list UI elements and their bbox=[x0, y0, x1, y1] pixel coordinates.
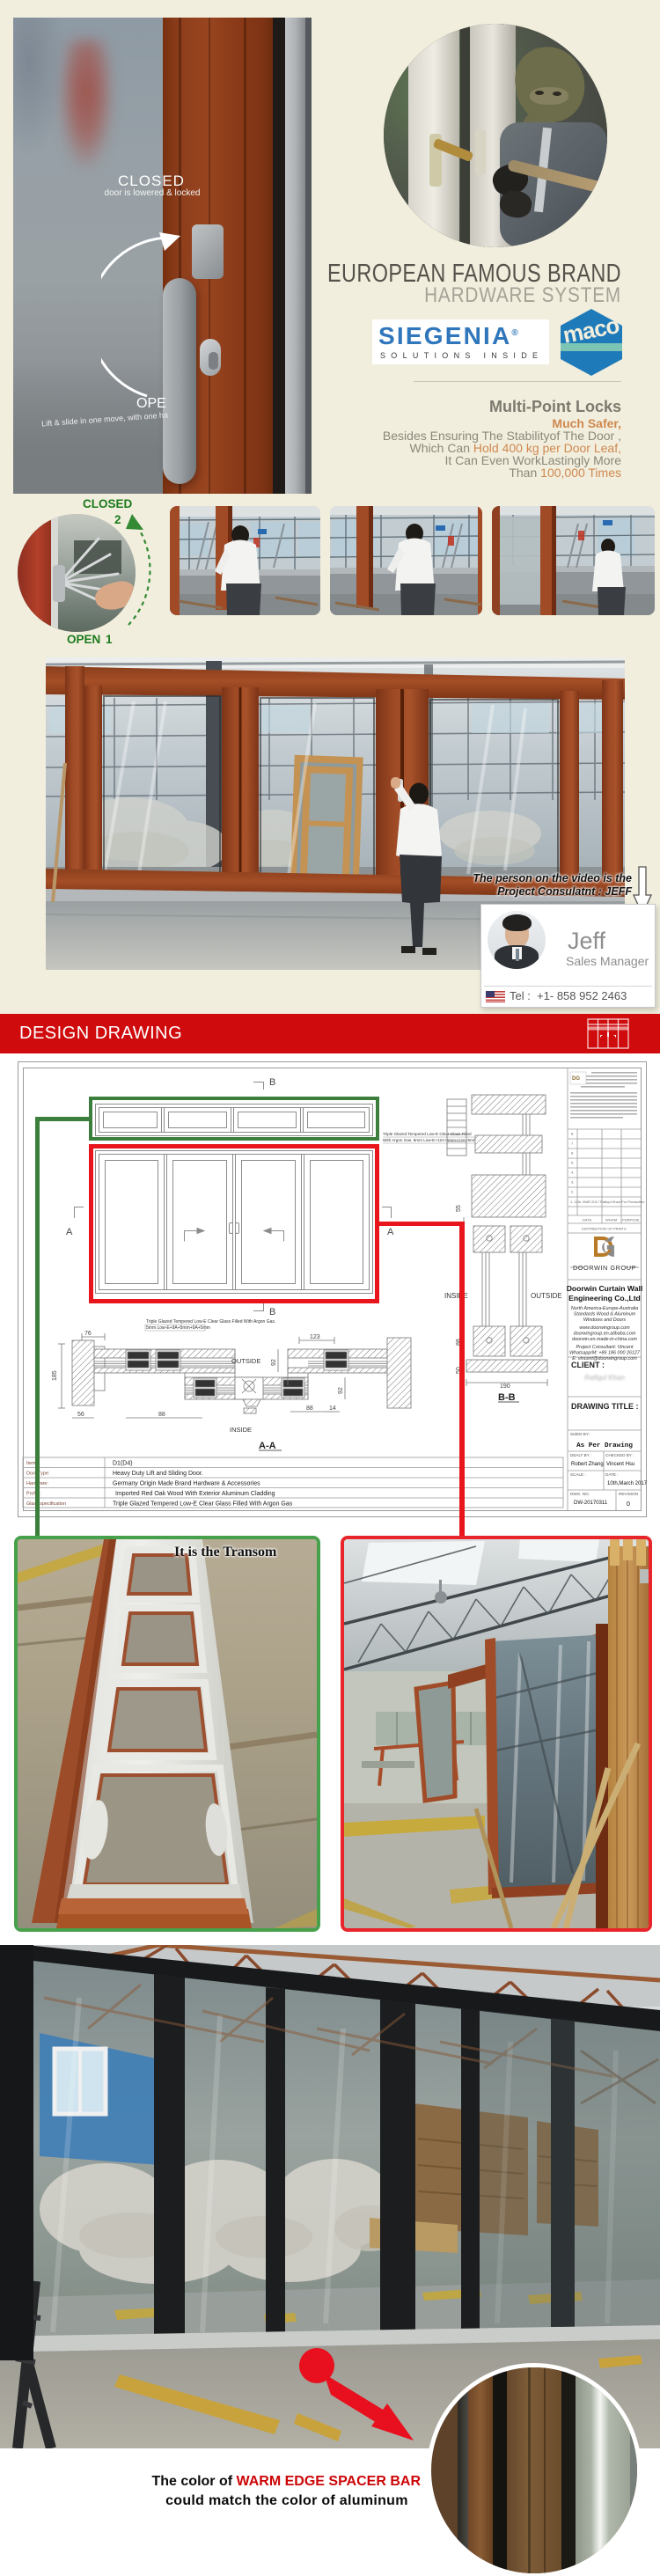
svg-text:185: 185 bbox=[52, 1370, 58, 1381]
svg-text:North America-Europe-Australia: North America-Europe-Australia bbox=[571, 1306, 638, 1311]
svg-text:DEALT BY :: DEALT BY : bbox=[570, 1453, 591, 1457]
svg-text:Doorwin Curtain Wall: Doorwin Curtain Wall bbox=[567, 1284, 643, 1293]
svg-text:WHOM: WHOM bbox=[605, 1218, 617, 1222]
svg-text:14: 14 bbox=[329, 1405, 336, 1412]
svg-text:Triple Glazed Tempered Low-E C: Triple Glazed Tempered Low-E Clear Glass… bbox=[146, 1319, 275, 1325]
svg-text:B: B bbox=[269, 1077, 275, 1088]
svg-text:56: 56 bbox=[77, 1412, 84, 1418]
svg-text:DWG. NO.: DWG. NO. bbox=[570, 1492, 590, 1496]
svg-text:55: 55 bbox=[456, 1205, 462, 1212]
svg-text:88: 88 bbox=[158, 1412, 165, 1418]
svg-text:DATE: DATE bbox=[583, 1218, 592, 1222]
svg-text:A: A bbox=[66, 1227, 73, 1237]
svg-text:DRAWING TITLE :: DRAWING TITLE : bbox=[571, 1402, 639, 1411]
svg-text:DOORWIN GROUP: DOORWIN GROUP bbox=[573, 1264, 636, 1272]
svg-text:www.doorwingroup.com: www.doorwingroup.com bbox=[579, 1325, 630, 1331]
svg-text:6.: 6. bbox=[571, 1151, 574, 1156]
svg-text:Windows and Doors: Windows and Doors bbox=[583, 1317, 626, 1323]
svg-text:92: 92 bbox=[338, 1387, 344, 1394]
svg-text:92: 92 bbox=[271, 1359, 277, 1366]
svg-text:Robert Zhang: Robert Zhang bbox=[571, 1462, 604, 1467]
svg-text:7.: 7. bbox=[571, 1141, 574, 1146]
svg-text:2.: 2. bbox=[571, 1190, 574, 1194]
svg-text:Glass specification: Glass specification bbox=[26, 1501, 66, 1507]
svg-text:1. 11th. MAR 2017 Rafiqul Khan: 1. 11th. MAR 2017 Rafiqul Khan For Produ… bbox=[570, 1200, 644, 1204]
svg-text:Heavy Duty Lift and Sliding Do: Heavy Duty Lift and Sliding Door. bbox=[113, 1471, 203, 1477]
svg-text:Triple Glazed Tempered Low-E C: Triple Glazed Tempered Low-E Clear Glass… bbox=[113, 1501, 293, 1508]
svg-text:DW-20170311: DW-20170311 bbox=[574, 1501, 608, 1506]
svg-text:D1(D4): D1(D4) bbox=[113, 1461, 133, 1467]
svg-text:CHECKED BY :: CHECKED BY : bbox=[605, 1453, 634, 1457]
svg-text:OUTSIDE: OUTSIDE bbox=[531, 1292, 562, 1300]
svg-text:Project Consultant: Vincent: Project Consultant: Vincent bbox=[576, 1345, 634, 1350]
svg-text:Vincent Hsu: Vincent Hsu bbox=[606, 1462, 634, 1467]
svg-text:10th,March 2017: 10th,March 2017 bbox=[607, 1481, 648, 1486]
svg-text:Germany Origin Made Brand Hard: Germany Origin Made Brand Hardware & Acc… bbox=[113, 1481, 260, 1487]
svg-text:SIZED BY:: SIZED BY: bbox=[570, 1432, 590, 1436]
svg-text:Standards Wood & Aluminum: Standards Wood & Aluminum bbox=[574, 1312, 636, 1317]
svg-text:DISTRIBUTION OF PRINTS: DISTRIBUTION OF PRINTS bbox=[582, 1227, 627, 1231]
svg-text:3.: 3. bbox=[571, 1180, 574, 1185]
svg-text:B-B: B-B bbox=[498, 1392, 516, 1403]
svg-text:8.: 8. bbox=[571, 1132, 574, 1136]
svg-text:Engineering Co.,Ltd: Engineering Co.,Ltd bbox=[568, 1294, 641, 1303]
svg-text:CLIENT :: CLIENT : bbox=[571, 1361, 605, 1369]
svg-text:123: 123 bbox=[310, 1334, 320, 1340]
svg-text:INSIDE: INSIDE bbox=[230, 1426, 252, 1434]
svg-text:5mm Low-E+9A+5mm+9A+5mm: 5mm Low-E+9A+5mm+9A+5mm bbox=[146, 1325, 210, 1331]
svg-text:A-A: A-A bbox=[259, 1441, 276, 1451]
svg-text:B: B bbox=[269, 1307, 275, 1317]
svg-text:Imported Red Oak Wood With Ext: Imported Red Oak Wood With Exterior Alum… bbox=[115, 1491, 275, 1497]
svg-text:DATE :: DATE : bbox=[605, 1472, 618, 1477]
svg-text:0: 0 bbox=[627, 1501, 630, 1508]
svg-text:doorwin.en.made-in-china.com: doorwin.en.made-in-china.com bbox=[572, 1337, 637, 1342]
svg-text:5.: 5. bbox=[571, 1161, 574, 1165]
svg-text:REVISION: REVISION bbox=[619, 1492, 638, 1496]
svg-text:88: 88 bbox=[306, 1405, 313, 1412]
svg-text:PURPOSE: PURPOSE bbox=[622, 1218, 640, 1222]
svg-text:A: A bbox=[387, 1227, 394, 1237]
svg-text:OUTSIDE: OUTSIDE bbox=[231, 1357, 260, 1365]
svg-text:SCALE :: SCALE : bbox=[570, 1472, 586, 1477]
svg-text:Rafiqul Khan: Rafiqul Khan bbox=[584, 1374, 625, 1382]
svg-text:Triple Glazed Tempered Low-E C: Triple Glazed Tempered Low-E Clear Glass… bbox=[383, 1132, 472, 1136]
svg-text:DG: DG bbox=[572, 1076, 580, 1082]
svg-text:doorwingroup.en.alibaba.com: doorwingroup.en.alibaba.com bbox=[574, 1332, 636, 1337]
svg-text:190: 190 bbox=[500, 1383, 510, 1390]
svg-text:4.: 4. bbox=[571, 1171, 574, 1175]
svg-text:76: 76 bbox=[84, 1331, 92, 1337]
svg-text:As Per Drawing: As Per Drawing bbox=[576, 1442, 633, 1449]
svg-text:Whatsapp/M: +86 186 000 26127: Whatsapp/M: +86 186 000 26127 bbox=[569, 1351, 641, 1356]
